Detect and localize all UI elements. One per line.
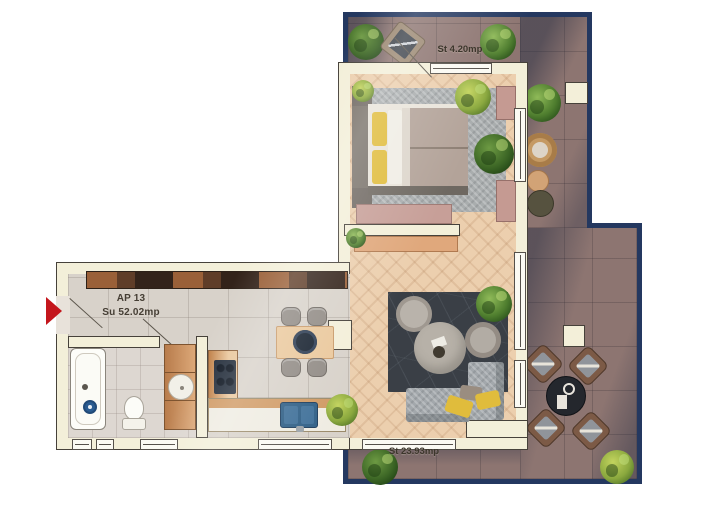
stool-dot [88, 405, 92, 409]
plant-icon [455, 79, 491, 115]
sink-basin [301, 406, 314, 424]
terrace-top-label: St 4.20mp [415, 44, 505, 55]
entrance-arrow-icon [46, 297, 62, 325]
terrace-right-lower-ext [592, 223, 642, 484]
plant-icon [474, 134, 514, 174]
basin-drain [180, 386, 184, 390]
bath-stool [83, 400, 97, 414]
hall-wardrobe-row [86, 271, 348, 289]
bed-pillow-yellow [372, 112, 387, 146]
sink-faucet [296, 426, 304, 432]
chair-cushion [575, 353, 600, 378]
table-decor [433, 346, 445, 358]
cooktop [214, 360, 236, 394]
chair-cushion [532, 142, 548, 158]
apartment-unit-text: AP 13 [85, 292, 177, 306]
terrace-small-table [527, 170, 549, 192]
floorplan-canvas: AP 13 Su 52.02mp St 4.20mp St 23.93mp [0, 0, 720, 514]
terrace-pouf [527, 190, 554, 217]
vanity-basin [168, 374, 194, 400]
kitchen-sink [280, 402, 318, 428]
window [140, 439, 178, 450]
chair-cushion [578, 418, 603, 443]
bathroom-wall-right [196, 336, 208, 438]
plant-icon [476, 286, 512, 322]
kitchen-counter-bottom [208, 398, 346, 432]
window [514, 360, 526, 408]
bed-headboard [352, 106, 368, 188]
window [514, 108, 526, 182]
bedroom-dresser [356, 204, 452, 224]
chair-cushion [388, 29, 419, 60]
terrace-main-label: St 23.93mp [368, 446, 460, 457]
dining-chair [307, 358, 327, 377]
window [430, 63, 492, 74]
dining-chair [281, 358, 301, 377]
window [514, 252, 526, 350]
terrace-round-table [546, 376, 586, 416]
terrace-side-table [563, 325, 585, 347]
table-bowl [293, 330, 317, 354]
apartment-label: AP 13 Su 52.02mp [85, 292, 177, 319]
bedroom-wardrobe [496, 86, 516, 120]
bathtub-basin [75, 353, 101, 425]
living-wall-corner [466, 420, 528, 438]
armchair [465, 322, 501, 358]
toilet-tank [122, 418, 146, 430]
dining-chair [281, 307, 301, 326]
console-table [354, 236, 458, 252]
plant-icon [346, 228, 366, 248]
table-decor [563, 383, 575, 395]
window [96, 439, 114, 450]
bed-pillow-yellow [372, 150, 387, 184]
hanging-chair [523, 133, 557, 167]
bed-duvet [402, 108, 468, 188]
sink-basin [284, 406, 298, 424]
plant-icon [352, 80, 374, 102]
plant-icon [523, 84, 561, 122]
window [72, 439, 92, 450]
terrace-side-table [565, 82, 588, 104]
bed-pillow-white [388, 110, 402, 184]
bathtub [70, 348, 106, 430]
bed-end-bench [368, 186, 468, 195]
plant-icon [348, 24, 384, 60]
chair-cushion [533, 415, 558, 440]
bathroom-wall-top [68, 336, 160, 348]
bathtub-drain [82, 384, 88, 390]
bedroom-wardrobe [496, 180, 516, 222]
apartment-area-text: Su 52.02mp [85, 306, 177, 320]
plant-icon [600, 450, 634, 484]
toilet-bowl [124, 396, 144, 420]
plant-icon [326, 394, 358, 426]
dining-chair [307, 307, 327, 326]
window [258, 439, 332, 450]
chair-cushion [530, 351, 555, 376]
table-decor [557, 395, 567, 409]
